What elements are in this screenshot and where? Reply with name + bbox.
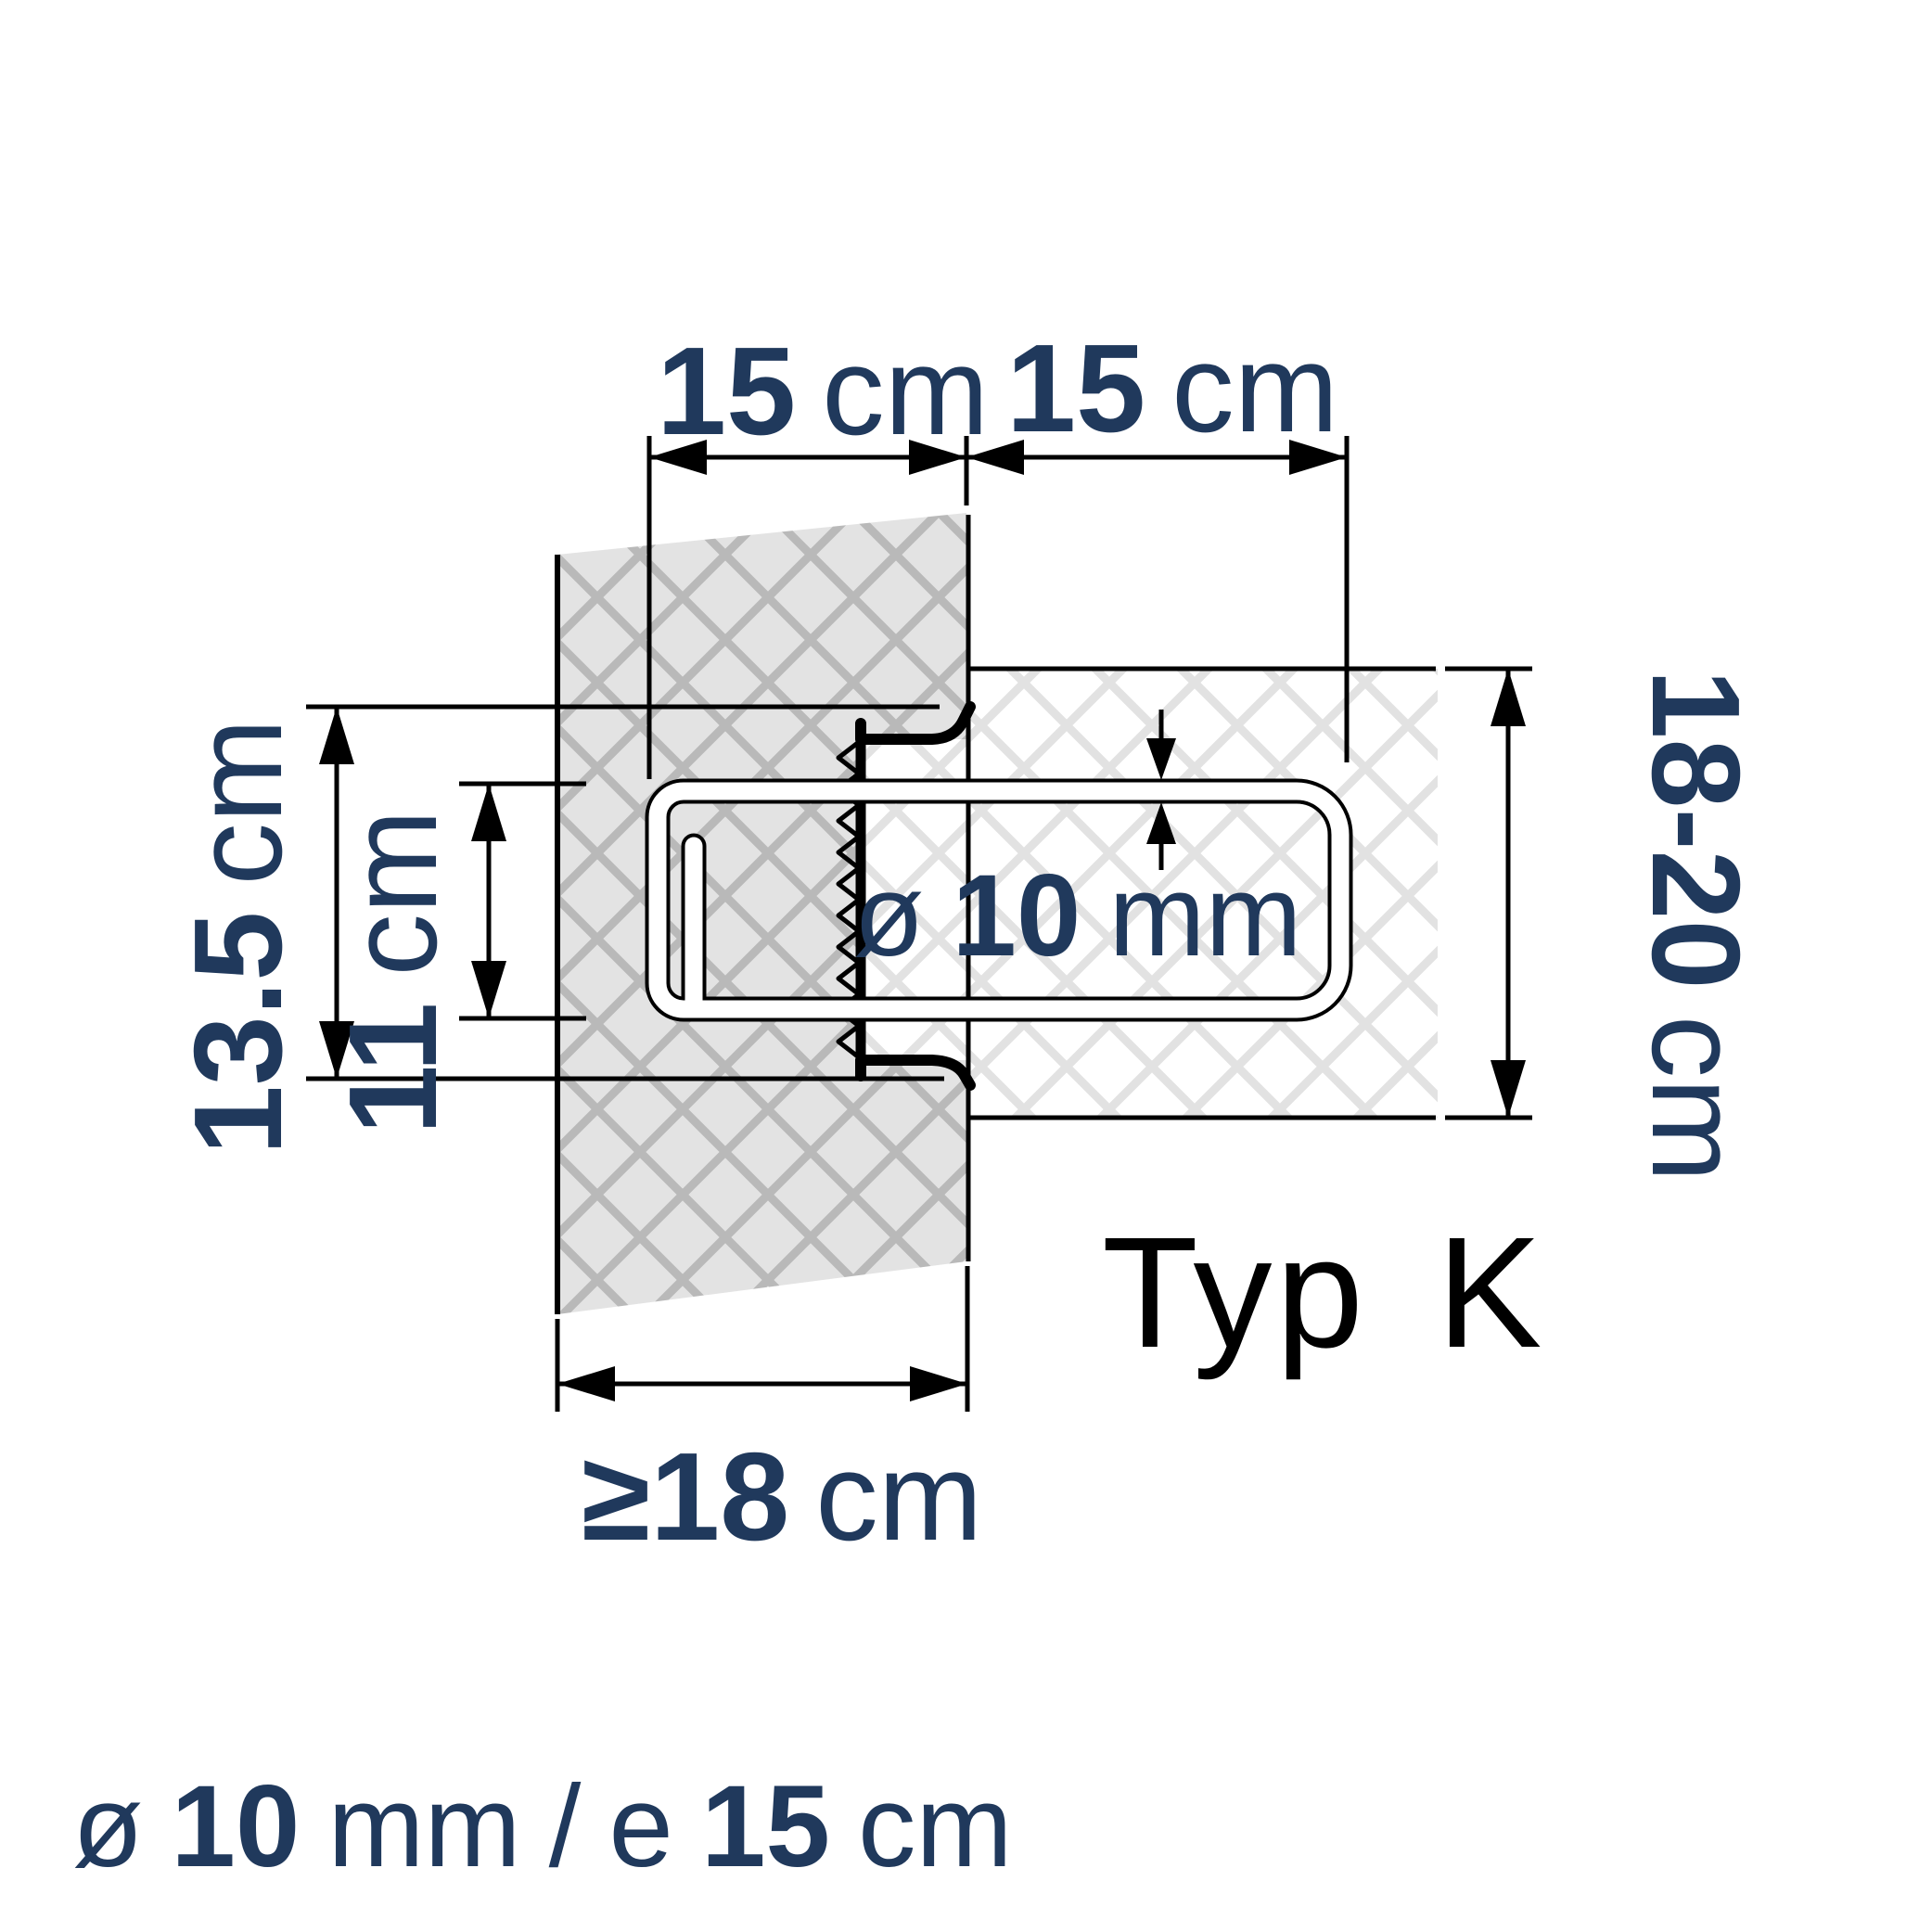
label-bar-diameter: ø10mm [853,851,1302,980]
label-left-outer-dimension: 13.5cm [168,719,308,1156]
label-bottom-dimension: ≥18cm [582,1427,982,1567]
label-right-dimension: 18-20cm [1626,669,1766,1182]
type-designation: TypK [1102,1205,1545,1381]
label-top-left-dimension: 15cm [657,321,989,461]
label-left-inner-dimension: 11cm [323,810,463,1135]
dimension-right [1445,669,1532,1118]
label-top-right-dimension: 15cm [1006,318,1338,458]
footer-specification: ø10mm/e15cm [72,1762,1013,1891]
technical-drawing-typ-k: 15cm 15cm 13.5cm 11cm 18-20cm ≥18cm ø10m… [0,0,1932,1932]
